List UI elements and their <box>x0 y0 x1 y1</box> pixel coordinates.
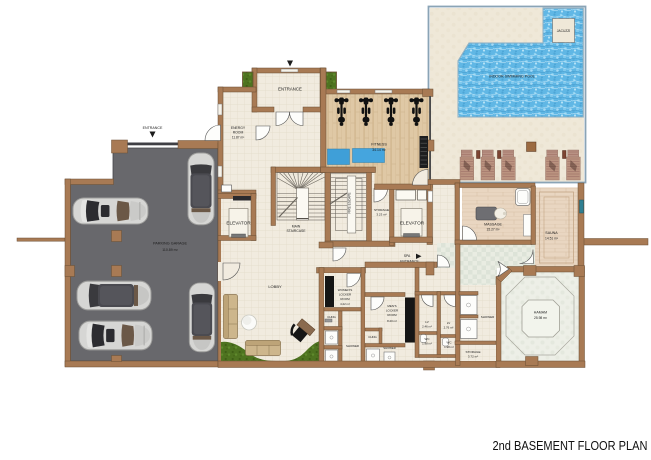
svg-text:14.51 m²: 14.51 m² <box>545 237 559 241</box>
svg-text:FITNESS: FITNESS <box>371 143 387 147</box>
svg-text:11.87 m²: 11.87 m² <box>232 136 244 140</box>
svg-text:34.14 m²: 34.14 m² <box>372 148 386 152</box>
svg-text:25.98 m²: 25.98 m² <box>534 316 548 320</box>
svg-text:LV: LV <box>447 321 450 325</box>
svg-text:SAUNA: SAUNA <box>545 231 558 235</box>
svg-text:LV: LV <box>425 320 428 324</box>
svg-text:8.20 m²: 8.20 m² <box>387 319 397 323</box>
svg-text:HAMAM: HAMAM <box>534 311 547 315</box>
svg-text:CHNG: CHNG <box>327 315 336 319</box>
svg-text:STORAGE: STORAGE <box>374 208 389 212</box>
svg-text:ROOM: ROOM <box>340 297 350 301</box>
svg-text:15.27 m²: 15.27 m² <box>486 228 500 232</box>
svg-text:LOCKER: LOCKER <box>339 293 352 297</box>
svg-text:PARKING GARAGE: PARKING GARAGE <box>153 242 188 246</box>
svg-text:2.76 m²: 2.76 m² <box>444 326 454 330</box>
svg-text:ELEVATOR: ELEVATOR <box>226 221 251 226</box>
svg-text:STORAGE: STORAGE <box>465 350 480 354</box>
svg-text:SHOWER: SHOWER <box>383 346 396 350</box>
svg-text:110.89 m²: 110.89 m² <box>162 248 178 252</box>
svg-text:MEN'S: MEN'S <box>387 304 396 308</box>
svg-text:ROOM: ROOM <box>387 313 397 317</box>
svg-text:SHOWER: SHOWER <box>346 344 359 348</box>
svg-text:CHNG: CHNG <box>368 335 377 339</box>
svg-text:WC: WC <box>447 341 453 345</box>
svg-text:LOCKER: LOCKER <box>386 309 399 313</box>
svg-text:MAIN: MAIN <box>292 225 301 229</box>
svg-text:JACUZZI: JACUZZI <box>557 29 571 33</box>
svg-text:ENTRANCE: ENTRANCE <box>278 87 302 92</box>
svg-text:ELEVATOR: ELEVATOR <box>400 221 425 226</box>
svg-text:2.46 m²: 2.46 m² <box>422 325 432 329</box>
svg-text:3.23 m²: 3.23 m² <box>376 213 386 217</box>
svg-text:STAIRCASE: STAIRCASE <box>287 229 307 233</box>
svg-text:INDOOR SWIMMING POOL: INDOOR SWIMMING POOL <box>489 75 535 79</box>
svg-text:ROOM: ROOM <box>233 131 244 135</box>
svg-text:ENTRANCE: ENTRANCE <box>143 126 163 130</box>
svg-text:FIRE ESCAPE: FIRE ESCAPE <box>348 192 352 213</box>
svg-text:1.98 m²: 1.98 m² <box>444 345 454 349</box>
svg-text:LOBBY: LOBBY <box>268 284 282 289</box>
svg-text:4.22 m²: 4.22 m² <box>340 302 350 306</box>
svg-text:SPA: SPA <box>404 254 411 258</box>
svg-text:1.98 m²: 1.98 m² <box>422 342 432 346</box>
svg-text:WC: WC <box>425 337 431 341</box>
svg-text:2nd BASEMENT FLOOR PLAN: 2nd BASEMENT FLOOR PLAN <box>493 438 648 453</box>
svg-text:ENERGY: ENERGY <box>231 126 246 130</box>
svg-text:WOMEN'S: WOMEN'S <box>338 288 352 292</box>
svg-text:3.72 m²: 3.72 m² <box>468 355 478 359</box>
svg-text:MASSAGE: MASSAGE <box>484 223 502 227</box>
svg-text:SHOWER: SHOWER <box>481 315 495 319</box>
